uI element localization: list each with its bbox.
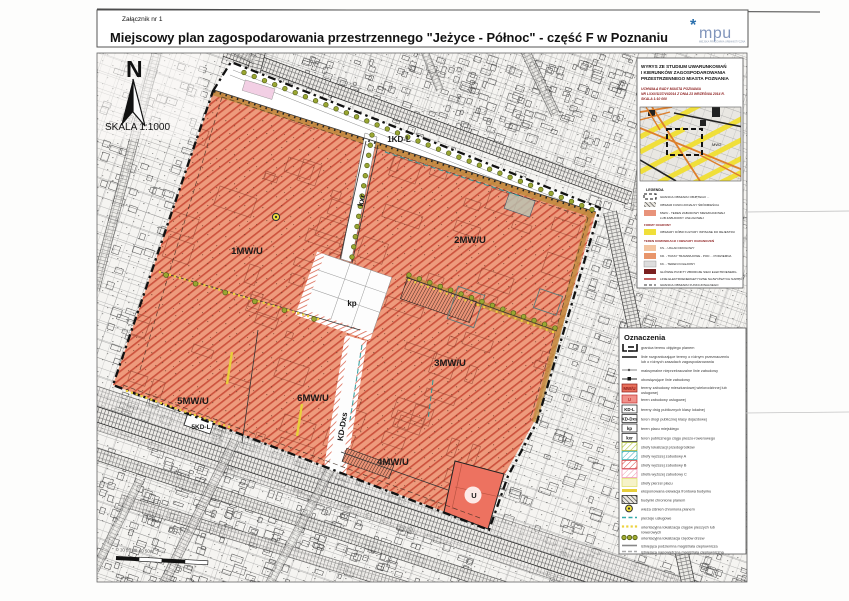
svg-text:GRANICA OBSZARU FUNKCJONALNEGO: GRANICA OBSZARU FUNKCJONALNEGO xyxy=(660,283,719,287)
svg-text:KD-Dxs: KD-Dxs xyxy=(622,417,638,422)
svg-text:TEREN KOMUNIKACJI I OBSZARY OG: TEREN KOMUNIKACJI I OBSZARY OGRANICZEŃ xyxy=(644,238,714,243)
svg-text:UCHWAŁA RADY MIASTA POZNANIA: UCHWAŁA RADY MIASTA POZNANIA xyxy=(641,87,701,91)
svg-text:SKALA 1:10 000: SKALA 1:10 000 xyxy=(641,97,667,101)
svg-text:KD-L: KD-L xyxy=(624,407,635,412)
svg-text:5MW/U: 5MW/U xyxy=(177,396,209,407)
svg-text:tereny zabudowy mieszkaniowej: tereny zabudowy mieszkaniowej wielorodzi… xyxy=(641,386,727,390)
svg-text:maksymalne nieprzekraczalne li: maksymalne nieprzekraczalne linie zabudo… xyxy=(641,369,718,373)
svg-text:pierzeje usługowe: pierzeje usługowe xyxy=(641,517,671,521)
svg-text:strefa wyższej zabudowy C: strefa wyższej zabudowy C xyxy=(641,473,687,477)
svg-text:FORMY OCHRONY: FORMY OCHRONY xyxy=(644,223,671,227)
svg-text:orientacyjna lokalizacja ciągó: orientacyjna lokalizacja ciągów pieszych… xyxy=(641,526,715,530)
svg-text:strefy pierzei placu: strefy pierzei placu xyxy=(641,482,673,486)
svg-text:istniejąca podziemna magistral: istniejąca podziemna magistrala cieplown… xyxy=(641,545,718,549)
svg-text:6MW/U: 6MW/U xyxy=(297,393,329,404)
svg-text:kp: kp xyxy=(347,299,356,308)
svg-text:KS. - UKŁAD DROGOWY: KS. - UKŁAD DROGOWY xyxy=(660,246,695,250)
svg-text:LUB ZABUDOWY USŁUGOWEJ: LUB ZABUDOWY USŁUGOWEJ xyxy=(660,216,704,220)
svg-text:5KD-L: 5KD-L xyxy=(191,424,210,431)
svg-text:linie rozgraniczające tereny o: linie rozgraniczające tereny o różnym pr… xyxy=(641,355,729,359)
svg-text:rowerowych: rowerowych xyxy=(641,531,661,535)
svg-text:lub o różnych zasadach zagospo: lub o różnych zasadach zagospodarowania xyxy=(641,360,715,364)
svg-text:budynki chronione planem: budynki chronione planem xyxy=(641,499,685,503)
svg-text:wieża ciśnień chroniona planem: wieża ciśnień chroniona planem xyxy=(641,508,695,512)
svg-text:teren zabudowy usługowej: teren zabudowy usługowej xyxy=(641,398,686,402)
svg-text:strefy lokalizacji przedogródk: strefy lokalizacji przedogródków xyxy=(641,446,695,450)
svg-text:granica terenu objętego planem: granica terenu objętego planem xyxy=(641,346,694,350)
svg-text:teren publicznego ciągu pieszo: teren publicznego ciągu pieszo-roweroweg… xyxy=(641,437,715,441)
svg-text:I KIERUNKÓW ZAGOSPODAROWANIA: I KIERUNKÓW ZAGOSPODAROWANIA xyxy=(641,68,726,75)
svg-text:SKALA 1:1000: SKALA 1:1000 xyxy=(105,122,170,133)
svg-text:N: N xyxy=(126,56,143,82)
svg-text:LEGENDA: LEGENDA xyxy=(646,188,664,192)
svg-text:PRZESTRZENNEGO MIASTA POZNANIA: PRZESTRZENNEGO MIASTA POZNANIA xyxy=(641,76,729,81)
svg-text:1KD-L: 1KD-L xyxy=(387,135,411,144)
svg-text:3MW/U: 3MW/U xyxy=(434,358,466,369)
svg-text:KD. - TRASY TRAMWAJOWE - POD .: KD. - TRASY TRAMWAJOWE - POD ... PODZIEM… xyxy=(660,254,731,258)
svg-text:kp: kp xyxy=(627,426,632,431)
svg-text:Załącznik nr 1: Załącznik nr 1 xyxy=(122,16,163,23)
svg-text:MIEJSKA PRACOWNIA URBANISTYCZN: MIEJSKA PRACOWNIA URBANISTYCZNA xyxy=(699,41,746,44)
svg-text:GRANICA OBSZARU OBJĘTEGO ...: GRANICA OBSZARU OBJĘTEGO ... xyxy=(660,195,710,199)
svg-text:OBSZAR FUNKCJONALNY ŚRÓDMIEŚCI: OBSZAR FUNKCJONALNY ŚRÓDMIEŚCIA xyxy=(660,202,719,207)
svg-text:OBSZARY DÓBR KULTURY WPISANE D: OBSZARY DÓBR KULTURY WPISANE DO REJESTRU xyxy=(660,229,735,234)
svg-text:istniejąca napowietrzna magist: istniejąca napowietrzna magistrala ciepl… xyxy=(641,551,725,555)
svg-text:KK. - TEREN KOLEJOWY: KK. - TEREN KOLEJOWY xyxy=(660,262,695,266)
svg-text:orientacyjna lokalizacja rzędó: orientacyjna lokalizacja rzędów drzew xyxy=(641,537,705,541)
svg-text:NR LXXII/1137/VI/2014 Z DNIA 2: NR LXXII/1137/VI/2014 Z DNIA 23 WRZEŚNIA… xyxy=(641,91,725,96)
svg-text:strefy wyższej zabudowy B: strefy wyższej zabudowy B xyxy=(641,464,687,468)
svg-text:GŁÓWNE PUNKTY ZBIORCZE SIECI E: GŁÓWNE PUNKTY ZBIORCZE SIECI ELEKTROENER… xyxy=(660,269,737,274)
svg-text:Oznaczenia: Oznaczenia xyxy=(624,333,666,342)
svg-text:MW/U: MW/U xyxy=(623,386,635,391)
svg-text:4MW/U: 4MW/U xyxy=(377,457,409,468)
svg-text:2MW/U: 2MW/U xyxy=(454,235,486,246)
svg-text:U: U xyxy=(471,491,476,500)
svg-text:Miejscowy plan zagospodarowani: Miejscowy plan zagospodarowania przestrz… xyxy=(110,30,668,45)
svg-text:tereny dróg publicznych klasy: tereny dróg publicznych klasy lokalnej xyxy=(641,408,705,412)
svg-text:MW/U - TEREN ZABUDOWY MIESZKAN: MW/U - TEREN ZABUDOWY MIESZKANIOWEJ xyxy=(660,211,725,215)
svg-text:teren drogi publicznej klasy d: teren drogi publicznej klasy dojazdowej xyxy=(641,418,707,422)
svg-text:teren placu miejskiego: teren placu miejskiego xyxy=(641,427,679,431)
svg-text:eksponowana elewacja frontowa: eksponowana elewacja frontowa budynku xyxy=(641,490,711,494)
svg-text:mpu: mpu xyxy=(699,25,732,42)
svg-text:obowiązujące linie zabudowy: obowiązujące linie zabudowy xyxy=(641,378,690,382)
svg-text:strefy wyższej zabudowy A: strefy wyższej zabudowy A xyxy=(641,455,687,459)
svg-text:*: * xyxy=(690,17,697,34)
svg-text:U: U xyxy=(628,397,631,402)
svg-text:MW2: MW2 xyxy=(712,142,722,147)
svg-text:LINIE ELEKTROENERGETYCZNE NAJW: LINIE ELEKTROENERGETYCZNE NAJWYŻSZYCH NA… xyxy=(660,276,743,281)
svg-text:kxr: kxr xyxy=(626,436,633,441)
svg-text:usługowej: usługowej xyxy=(641,391,658,395)
svg-text:1MW/U: 1MW/U xyxy=(231,246,263,257)
svg-text:WYRYS ZE STUDIUM UWARUNKOWAŃ: WYRYS ZE STUDIUM UWARUNKOWAŃ xyxy=(641,62,727,69)
